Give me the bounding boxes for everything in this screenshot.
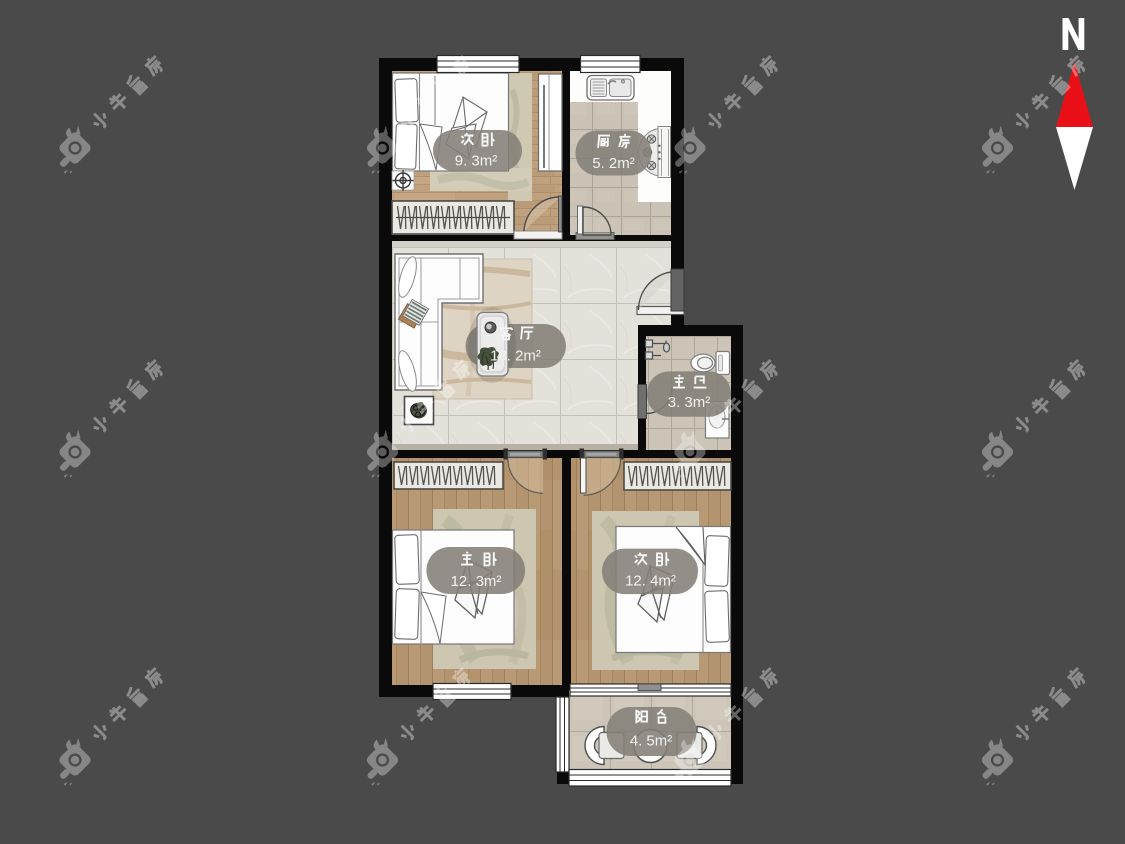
svg-text:5. 2m²: 5. 2m²	[592, 155, 635, 172]
svg-text:9. 3m²: 9. 3m²	[455, 153, 498, 170]
svg-text:3. 3m²: 3. 3m²	[668, 394, 711, 411]
svg-text:12. 3m²: 12. 3m²	[451, 573, 502, 590]
svg-text:4. 5m²: 4. 5m²	[630, 733, 673, 750]
svg-text:18. 2m²: 18. 2m²	[490, 348, 541, 365]
svg-text:12. 4m²: 12. 4m²	[625, 573, 676, 590]
